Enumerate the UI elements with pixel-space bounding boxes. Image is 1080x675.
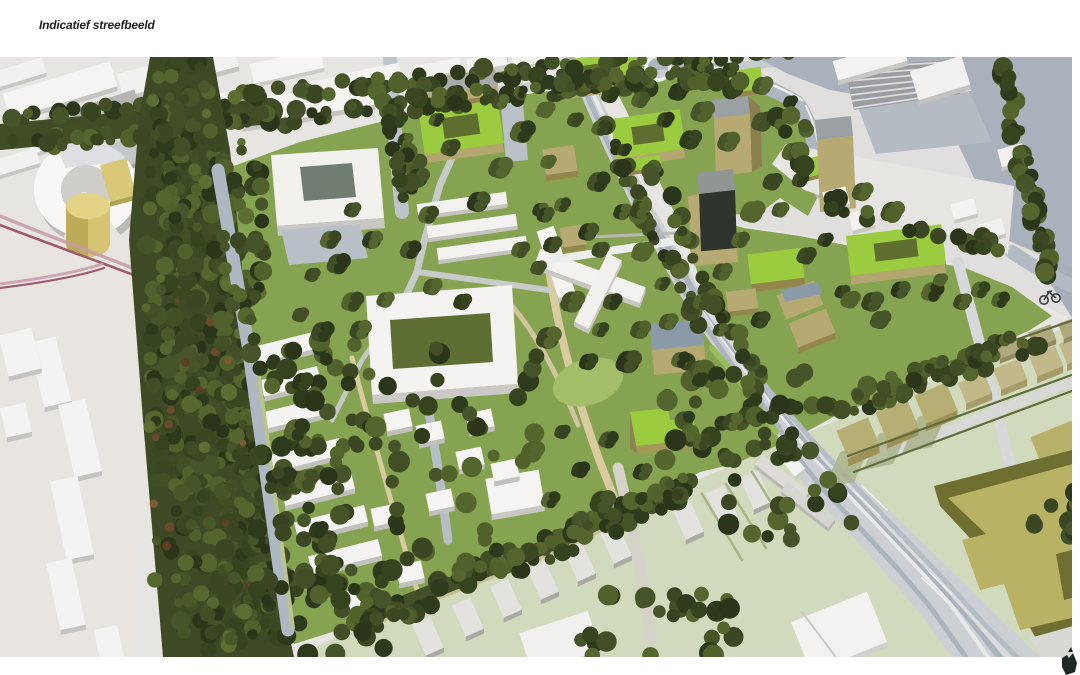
svg-text:Indicatief streefbeeld: Indicatief streefbeeld xyxy=(39,18,156,32)
